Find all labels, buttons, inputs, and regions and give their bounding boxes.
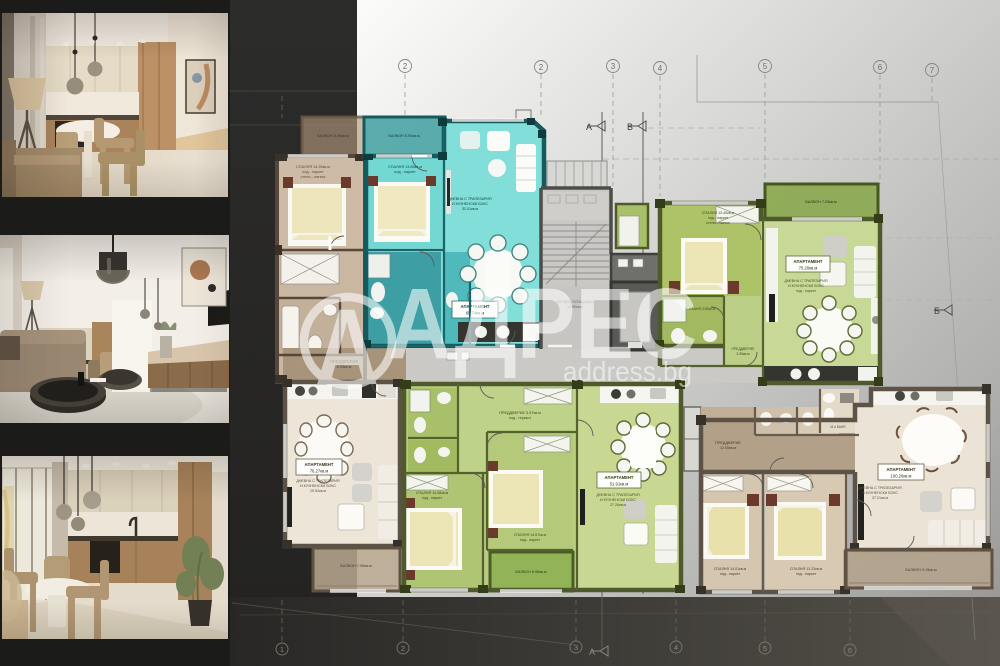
svg-text:ПРЕДДВЕРИЕ: ПРЕДДВЕРИЕ [731, 347, 755, 351]
svg-text:3.95кв.м: 3.95кв.м [736, 352, 750, 356]
svg-text:2: 2 [401, 644, 405, 653]
svg-text:А: А [315, 287, 379, 407]
svg-text:32.01кв.м: 32.01кв.м [462, 207, 478, 211]
svg-text:под - паркет: под - паркет [394, 170, 416, 174]
svg-text:под - паркет: под - паркет [520, 538, 541, 542]
svg-text:СПАЛНЯ 14.58кв.м: СПАЛНЯ 14.58кв.м [416, 491, 449, 495]
svg-text:29.52кв.м: 29.52кв.м [310, 489, 326, 493]
svg-text:под - теракот: под - теракот [509, 416, 531, 420]
svg-text:БАЛКОН 9.15кв.м: БАЛКОН 9.15кв.м [905, 568, 937, 572]
svg-text:АПАРТАМЕНТ: АПАРТАМЕНТ [794, 259, 823, 264]
svg-text:3: 3 [611, 62, 616, 71]
svg-text:A: A [589, 647, 595, 657]
svg-text:Б: Б [934, 306, 940, 316]
svg-text:СПАЛНЯ 14.67кв.м: СПАЛНЯ 14.67кв.м [514, 533, 547, 537]
svg-text:5: 5 [763, 644, 767, 653]
svg-text:2: 2 [539, 63, 544, 72]
svg-text:под - паркет: под - паркет [708, 216, 729, 220]
svg-text:12.05кв.м: 12.05кв.м [720, 446, 736, 450]
svg-text:под - паркет: под - паркет [796, 572, 817, 576]
svg-text:ДНЕВНА С ТРАПЕЗАРИЯ: ДНЕВНА С ТРАПЕЗАРИЯ [448, 197, 492, 201]
svg-text:ДНЕВНА С ТРАПЕЗАРИЯ: ДНЕВНА С ТРАПЕЗАРИЯ [784, 279, 828, 283]
svg-text:БАЛКОН 5.90кв.м: БАЛКОН 5.90кв.м [388, 134, 420, 138]
svg-text:БАЛКОН 6.95кв.м: БАЛКОН 6.95кв.м [515, 570, 547, 574]
svg-text:СПАЛНЯ 14.01кв.м: СПАЛНЯ 14.01кв.м [714, 567, 747, 571]
svg-text:М и БАНЯ: М и БАНЯ [831, 425, 847, 429]
svg-text:БАЛКОН 7.95кв.м: БАЛКОН 7.95кв.м [340, 564, 372, 568]
svg-text:4: 4 [674, 643, 678, 652]
svg-text:И КУХНЕНСКИ БОКС: И КУХНЕНСКИ БОКС [788, 284, 824, 288]
svg-text:2: 2 [403, 62, 408, 71]
svg-text:СПАЛНЯ 14.35кв.м: СПАЛНЯ 14.35кв.м [296, 165, 330, 169]
svg-text:И КУХНЕНСКИ БОКС: И КУХНЕНСКИ БОКС [300, 484, 336, 488]
svg-text:A: A [586, 122, 592, 132]
svg-text:ПРЕДДВЕРИЕ: ПРЕДДВЕРИЕ [715, 441, 741, 445]
svg-text:27.26кв.м: 27.26кв.м [610, 503, 626, 507]
svg-text:70.20кв.м: 70.20кв.м [799, 266, 818, 271]
svg-text:3: 3 [574, 643, 578, 652]
svg-text:37.21кв.м: 37.21кв.м [872, 496, 888, 500]
svg-text:5: 5 [763, 62, 768, 71]
svg-text:4: 4 [658, 64, 663, 73]
svg-text:под - паркет: под - паркет [302, 170, 324, 174]
svg-text:АПАРТАМЕНТ: АПАРТАМЕНТ [887, 467, 916, 472]
svg-text:АПАРТАМЕНТ: АПАРТАМЕНТ [605, 475, 634, 480]
svg-text:1: 1 [280, 645, 284, 654]
svg-text:И КУХНЕНСКИ БОКС: И КУХНЕНСКИ БОКС [862, 491, 898, 495]
svg-text:6: 6 [848, 646, 852, 655]
svg-text:СПАЛНЯ 13.23кв.м: СПАЛНЯ 13.23кв.м [790, 567, 823, 571]
svg-text:ДНЕВНА С ТРАПЕЗАРИЯ: ДНЕВНА С ТРАПЕЗАРИЯ [596, 493, 640, 497]
svg-text:БАЛКОН 5.45кв.м: БАЛКОН 5.45кв.м [317, 134, 349, 138]
svg-text:51.91кв.м: 51.91кв.м [610, 482, 629, 487]
svg-text:под - паркет: под - паркет [720, 572, 741, 576]
svg-text:7: 7 [930, 66, 935, 75]
svg-text:стени - латекс: стени - латекс [706, 221, 730, 225]
svg-text:под - паркет: под - паркет [422, 496, 443, 500]
svg-text:под - паркет: под - паркет [796, 289, 817, 293]
svg-text:ПРЕДДВЕРИЕ 5.97кв.м: ПРЕДДВЕРИЕ 5.97кв.м [499, 411, 541, 415]
svg-text:address.bg: address.bg [563, 356, 692, 387]
svg-text:И КУХНЕНСКИ БОКС: И КУХНЕНСКИ БОКС [600, 498, 636, 502]
svg-text:СПАЛНЯ 13.40кв.м: СПАЛНЯ 13.40кв.м [702, 211, 735, 215]
svg-text:100.26кв.м: 100.26кв.м [891, 474, 912, 479]
svg-text:АПАРТАМЕНТ: АПАРТАМЕНТ [305, 462, 334, 467]
svg-text:76.27кв.м: 76.27кв.м [310, 469, 329, 474]
svg-text:6: 6 [878, 63, 883, 72]
svg-text:БАЛКОН 7.03кв.м: БАЛКОН 7.03кв.м [805, 200, 837, 204]
svg-text:И КУХНЕНСКИ БОКС: И КУХНЕНСКИ БОКС [452, 202, 488, 206]
svg-text:ДНЕВНА С ТРАПЕЗАРИЯ: ДНЕВНА С ТРАПЕЗАРИЯ [858, 486, 902, 490]
svg-text:стени - латекс: стени - латекс [301, 175, 326, 179]
svg-text:ДНЕВНА С ТРАПЕЗАРИЯ: ДНЕВНА С ТРАПЕЗАРИЯ [296, 479, 340, 483]
svg-text:B: B [627, 122, 633, 132]
